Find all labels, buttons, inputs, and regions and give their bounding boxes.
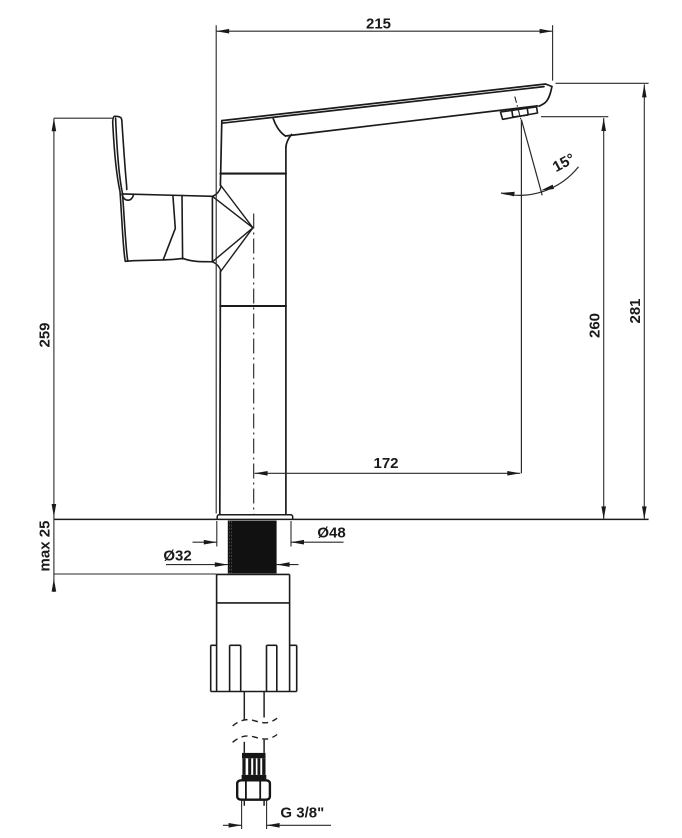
- svg-text:259: 259: [37, 322, 54, 347]
- svg-text:281: 281: [627, 298, 644, 323]
- svg-text:Ø48: Ø48: [317, 525, 345, 542]
- svg-text:Ø32: Ø32: [163, 548, 191, 565]
- svg-text:215: 215: [366, 16, 391, 33]
- svg-text:260: 260: [587, 313, 604, 338]
- svg-text:max 25: max 25: [37, 521, 54, 572]
- svg-text:172: 172: [373, 455, 398, 472]
- svg-text:G 3/8": G 3/8": [280, 805, 324, 822]
